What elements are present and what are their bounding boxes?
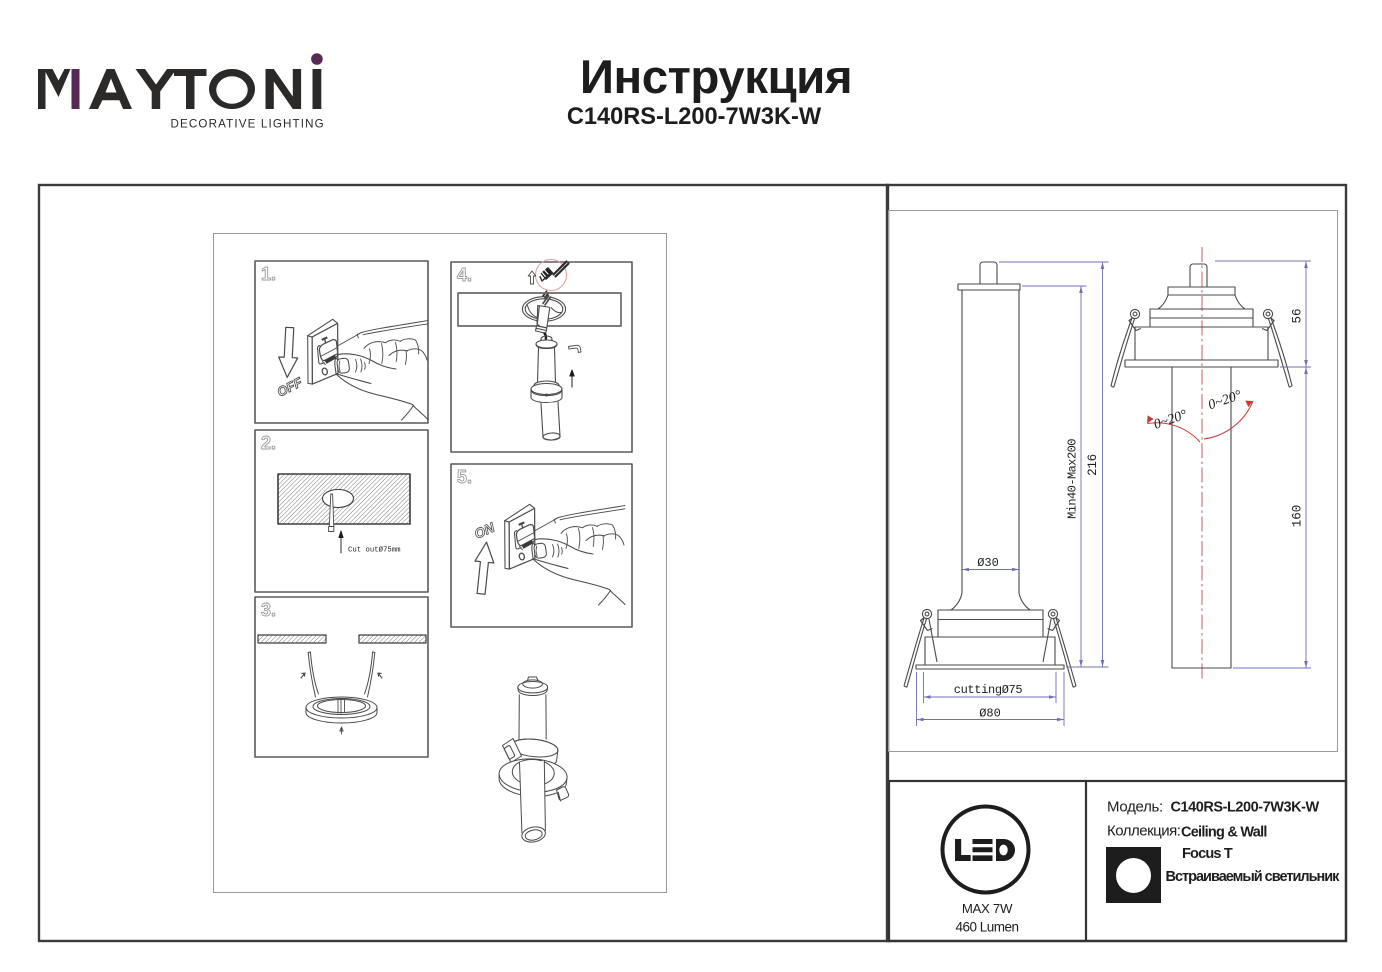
svg-text:5.: 5.: [457, 467, 472, 487]
svg-text:4.: 4.: [457, 265, 472, 285]
svg-text:3.: 3.: [261, 600, 276, 620]
svg-text:Коллекция:: Коллекция:: [1107, 823, 1180, 840]
svg-text:Модель:: Модель:: [1107, 799, 1163, 816]
svg-text:C140RS-L200-7W3K-W: C140RS-L200-7W3K-W: [567, 104, 822, 130]
svg-text:Ø30: Ø30: [977, 556, 999, 570]
svg-text:1.: 1.: [261, 264, 276, 284]
svg-text:216: 216: [1086, 454, 1100, 476]
svg-text:460 Lumen: 460 Lumen: [955, 920, 1018, 935]
svg-text:MAX 7W: MAX 7W: [962, 901, 1013, 916]
svg-text:56: 56: [1291, 308, 1305, 323]
svg-text:Min40-Max200: Min40-Max200: [1066, 439, 1080, 519]
svg-text:Cut outØ75mm: Cut outØ75mm: [348, 546, 401, 555]
svg-text:Инструкция: Инструкция: [580, 51, 852, 104]
svg-text:Встраиваемый светильник: Встраиваемый светильник: [1166, 869, 1341, 885]
svg-text:160: 160: [1291, 505, 1305, 528]
svg-text:DECORATIVE LIGHTING: DECORATIVE LIGHTING: [171, 118, 325, 131]
svg-text:Ø80: Ø80: [979, 707, 1001, 721]
svg-text:cuttingØ75: cuttingØ75: [954, 683, 1023, 697]
svg-text:2.: 2.: [261, 433, 276, 453]
svg-text:C140RS-L200-7W3K-W: C140RS-L200-7W3K-W: [1171, 800, 1320, 816]
svg-text:Ceiling & Wall: Ceiling & Wall: [1181, 825, 1267, 841]
svg-text:Focus T: Focus T: [1182, 846, 1233, 862]
